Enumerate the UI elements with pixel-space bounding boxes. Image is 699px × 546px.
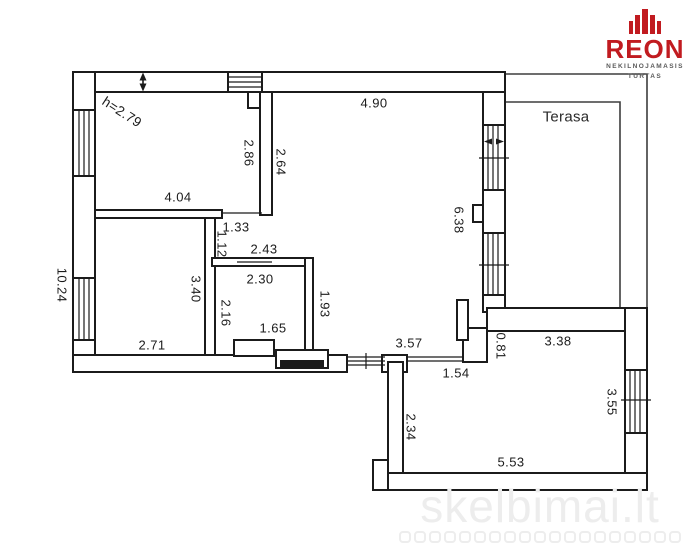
small-room-door	[237, 260, 272, 265]
windows-and-openings	[79, 77, 651, 433]
floor-plan-drawing	[0, 0, 699, 546]
watermark-dot	[489, 531, 501, 543]
logo-subtitle-line1: NEKILNOJAMASIS	[594, 62, 696, 72]
watermark-dot	[459, 531, 471, 543]
floor-plan-page: h=2.79 4.90 2.86 2.64 4.04 10.24 1.33 1.…	[0, 0, 699, 546]
watermark-dot	[564, 531, 576, 543]
watermark-dot	[639, 531, 651, 543]
watermark-dot	[609, 531, 621, 543]
dim-label-3-57: 3.57	[396, 336, 423, 351]
dim-label-4-04: 4.04	[165, 190, 192, 205]
watermark-dot	[399, 531, 411, 543]
watermark-dot	[549, 531, 561, 543]
watermark-dot	[429, 531, 441, 543]
watermark-dot	[519, 531, 531, 543]
walls	[73, 72, 647, 490]
reon-building-icon	[628, 8, 662, 35]
watermark-dot	[474, 531, 486, 543]
reon-logo: REON NEKILNOJAMASIS TURTAS	[594, 8, 696, 82]
watermark-text: skelbimai.lt	[388, 483, 692, 529]
door-threshold	[280, 360, 324, 367]
dim-label-1-12: 1.12	[215, 231, 230, 258]
watermark-dot	[669, 531, 681, 543]
dim-label-0-81: 0.81	[494, 333, 509, 360]
dim-label-3-40: 3.40	[189, 276, 204, 303]
dim-label-2-71: 2.71	[139, 338, 166, 353]
dim-label-3-55: 3.55	[605, 389, 620, 416]
dim-label-6-38: 6.38	[452, 207, 467, 234]
logo-brand-text: REON	[594, 36, 696, 62]
watermark-dot	[534, 531, 546, 543]
watermark-dot	[444, 531, 456, 543]
dim-label-4-90: 4.90	[361, 96, 388, 111]
dim-label-2-16: 2.16	[219, 300, 234, 327]
watermark-dots	[388, 531, 692, 543]
dim-label-2-86: 2.86	[242, 140, 257, 167]
watermark-dot	[414, 531, 426, 543]
dim-label-3-38: 3.38	[545, 334, 572, 349]
logo-subtitle-line2: TURTAS	[594, 72, 696, 82]
dim-label-2-64: 2.64	[274, 149, 289, 176]
skelbimai-watermark: skelbimai.lt	[388, 483, 692, 543]
watermark-dot	[624, 531, 636, 543]
dim-label-2-30: 2.30	[247, 272, 274, 287]
dim-label-1-65: 1.65	[260, 321, 287, 336]
watermark-dot	[594, 531, 606, 543]
watermark-dot	[654, 531, 666, 543]
dim-label-10-24: 10.24	[55, 268, 70, 303]
watermark-dot	[579, 531, 591, 543]
dim-label-2-43: 2.43	[251, 242, 278, 257]
dim-label-1-93: 1.93	[318, 291, 333, 318]
dim-label-2-34: 2.34	[404, 414, 419, 441]
dim-label-5-53: 5.53	[498, 455, 525, 470]
room-label-terasa: Terasa	[543, 109, 590, 126]
watermark-dot	[504, 531, 516, 543]
dim-label-1-54: 1.54	[443, 366, 470, 381]
